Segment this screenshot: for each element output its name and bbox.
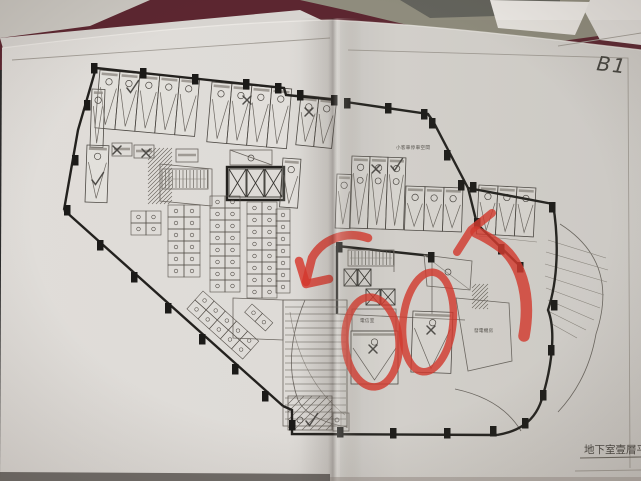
- photo-of-floor-plan: 電信室 發電機房 小客車停車空間 B1 地下室壹層平: [0, 0, 641, 481]
- photo-vignette: [0, 0, 641, 481]
- floor-plan-photo: 電信室 發電機房 小客車停車空間 B1 地下室壹層平: [0, 0, 641, 481]
